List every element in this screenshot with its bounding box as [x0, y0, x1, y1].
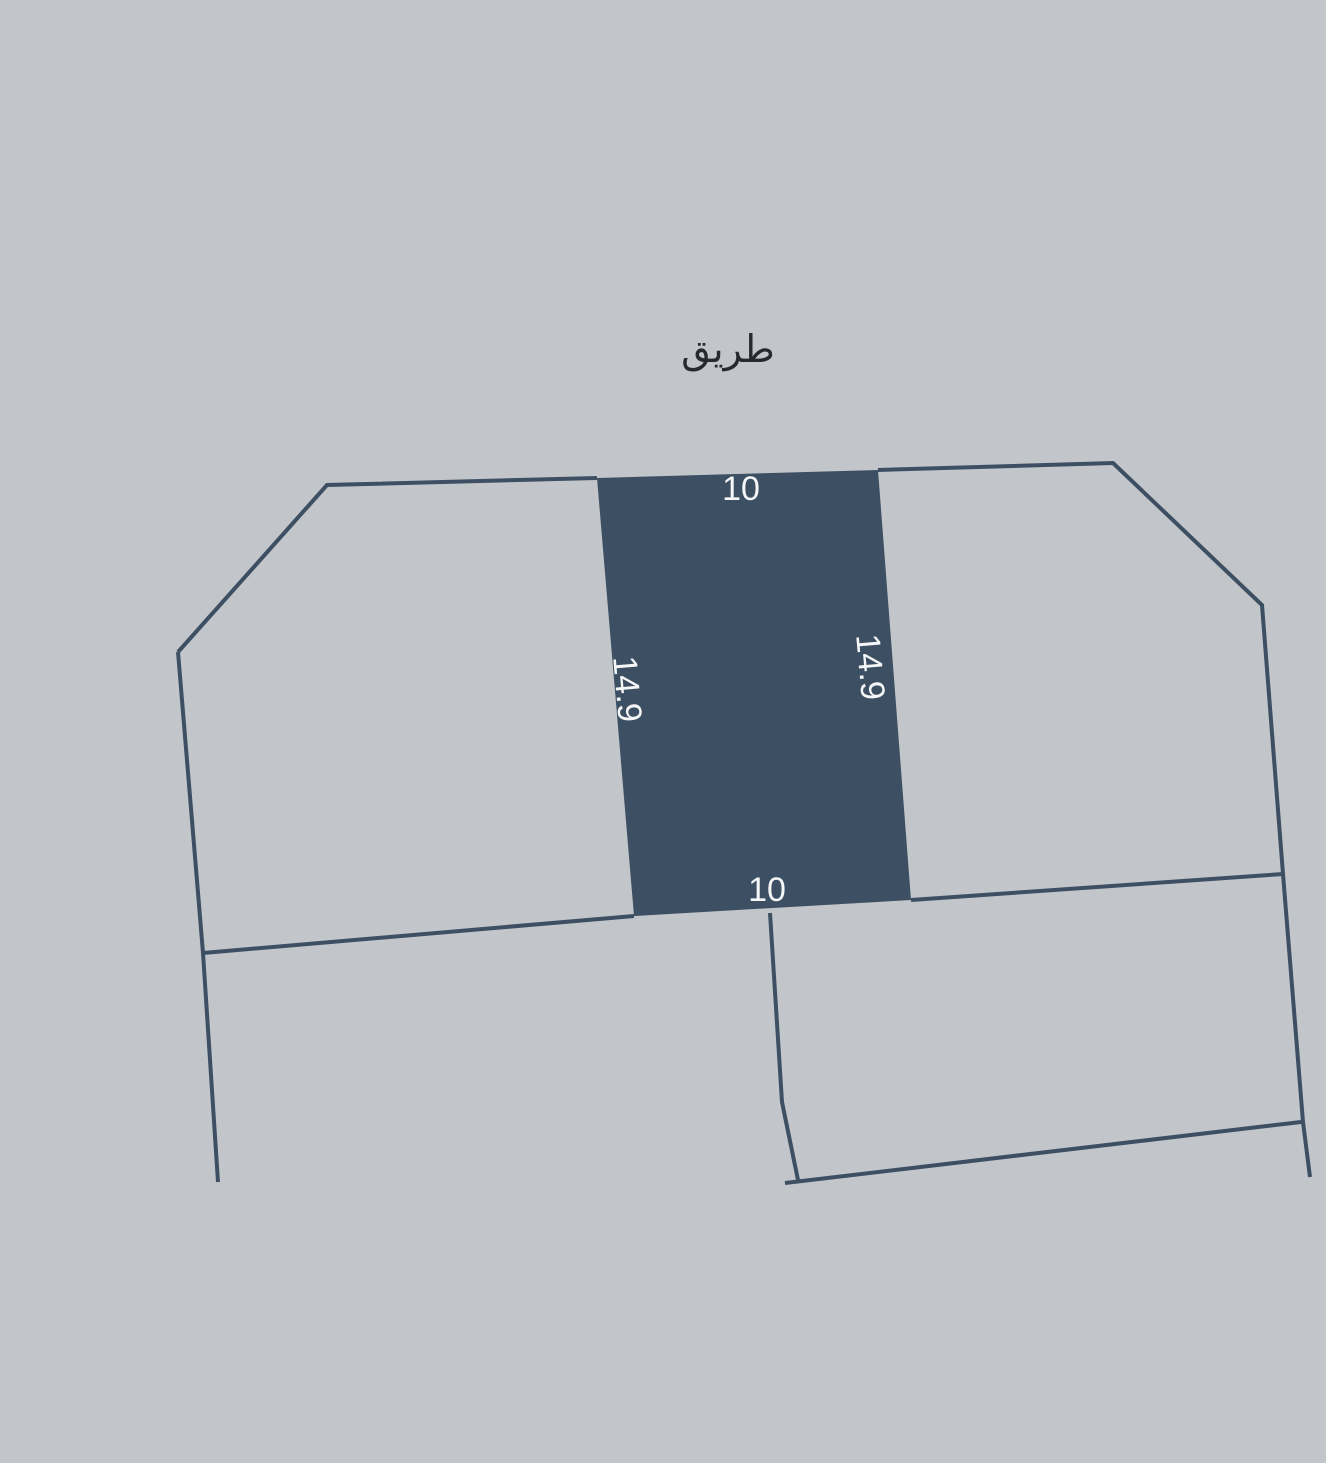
dimension-label-left-depth: 14.9: [605, 654, 649, 723]
road-label: طريق: [681, 327, 774, 372]
dimension-label-right-depth: 14.9: [848, 632, 892, 701]
cadastral-map: طريق 10 14.9 14.9 10: [0, 0, 1326, 1463]
dimension-label-bottom-width: 10: [748, 871, 786, 909]
plot-map-stage: طريق 10 14.9 14.9 10: [0, 0, 1326, 1463]
dimension-label-top-width: 10: [722, 470, 760, 508]
